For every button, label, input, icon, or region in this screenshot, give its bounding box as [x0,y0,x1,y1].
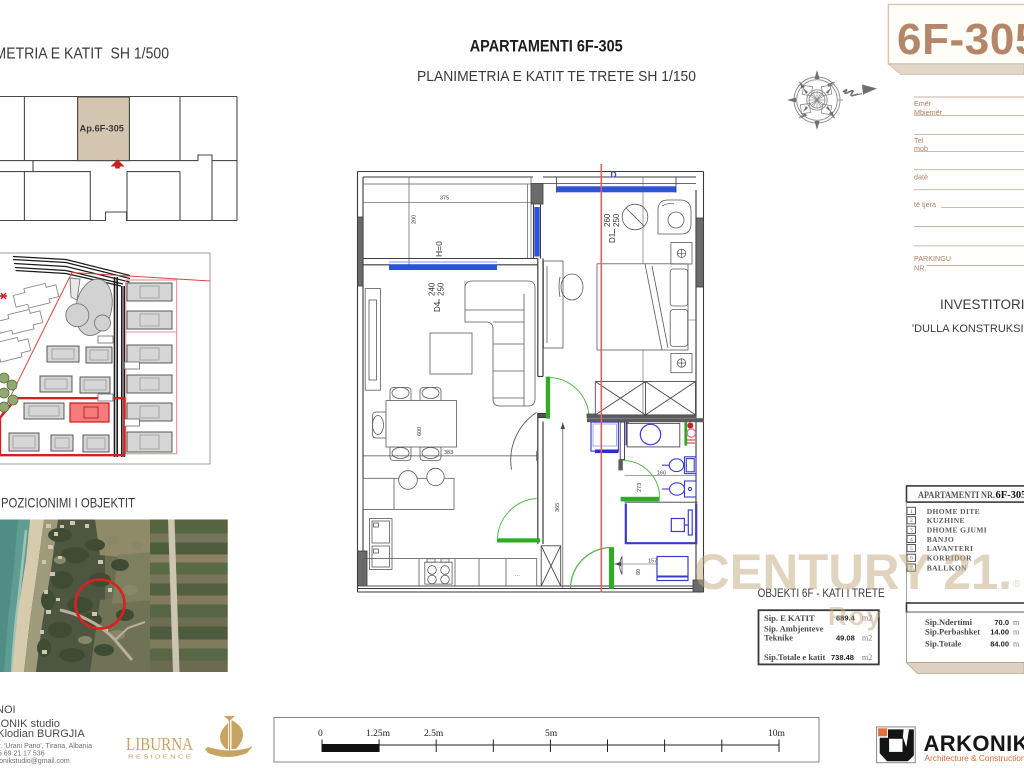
svg-text:datë: datë [914,173,928,182]
svg-text:Ap.6F-305: Ap.6F-305 [80,124,124,134]
svg-text:H=0: H=0 [434,241,444,257]
svg-text:160: 160 [657,470,666,476]
svg-text:Emër: Emër [914,99,932,108]
svg-text:375: 375 [440,196,449,202]
svg-text:250: 250 [437,282,446,296]
svg-text:Architecture & Construction sh: Architecture & Construction sh.p.k [925,753,1024,763]
svg-text:200: 200 [412,215,418,224]
svg-text:Teknike: Teknike [764,633,793,643]
svg-text:10m: 10m [768,729,786,739]
svg-text:m2: m2 [862,653,872,662]
svg-text:Sip.Totale: Sip.Totale [925,638,962,648]
svg-text:rk. Klodian BURGJIA: rk. Klodian BURGJIA [0,728,85,740]
svg-text:80: 80 [636,569,642,575]
svg-text:NR.: NR. [914,264,926,273]
svg-text:738.48: 738.48 [831,653,854,662]
svg-text:84.00: 84.00 [990,639,1009,648]
svg-text:...: ... [515,572,520,578]
svg-text:240: 240 [428,282,437,296]
svg-text:D1: D1 [608,232,617,243]
svg-text:Sip. E KATIT: Sip. E KATIT [764,613,815,623]
svg-text:4: 4 [910,537,913,543]
svg-text:1: 1 [910,509,913,515]
svg-text:POZICIONIMI I OBJEKTIT: POZICIONIMI I OBJEKTIT [1,495,135,511]
svg-text:6F-305: 6F-305 [996,490,1024,501]
svg-text:Sip.Perbashket: Sip.Perbashket [925,627,980,637]
svg-text:14.00: 14.00 [990,628,1009,637]
svg-text:3: 3 [910,528,913,534]
svg-text:m: m [1013,639,1020,648]
svg-text:APARTAMENTI NR.: APARTAMENTI NR. [918,491,995,501]
svg-text:D: D [611,170,617,180]
svg-text:365: 365 [555,503,561,512]
svg-text:600: 600 [417,427,423,436]
svg-text:70.0: 70.0 [994,618,1009,627]
svg-text:DHOME DITE: DHOME DITE [927,507,980,516]
svg-text:273: 273 [637,483,643,492]
svg-text:1.25m: 1.25m [366,729,391,739]
svg-text:0: 0 [318,729,323,739]
svg-text:DHOME GJUMI: DHOME GJUMI [927,526,987,535]
svg-text:®: ® [1013,579,1021,590]
svg-text:Roy: Roy [828,601,883,631]
svg-text:INVESTITORI: INVESTITORI [940,297,1024,312]
svg-text:PLANIMETRIA E KATIT TE TRETE S: PLANIMETRIA E KATIT TE TRETE SH 1/150 [417,69,696,85]
svg-text:mob: mob [914,144,928,153]
svg-text:LIBURNA: LIBURNA [126,734,193,754]
svg-text:6F-305: 6F-305 [897,15,1024,64]
svg-text:2.5m: 2.5m [424,729,444,739]
svg-text:PARKINGU: PARKINGU [914,254,951,263]
svg-text:250: 250 [612,213,621,227]
svg-text:260: 260 [603,213,612,227]
svg-text:Sip.Totale e katit: Sip.Totale e katit [764,652,825,662]
svg-text:APARTAMENTI 6F-305: APARTAMENTI 6F-305 [470,38,623,56]
svg-text:CENTURY 21.: CENTURY 21. [694,544,1012,600]
svg-text:Mbiemër: Mbiemër [914,108,943,117]
svg-text:të tjera: të tjera [914,200,936,209]
svg-text:D4: D4 [433,301,442,312]
svg-text:157: 157 [648,559,657,565]
svg-text:49.08: 49.08 [836,633,855,642]
svg-text:'DULLA KONSTRUKSION' sh.p.k: 'DULLA KONSTRUKSION' sh.p.k [912,323,1024,335]
svg-text:+355 69 21 17 536: +355 69 21 17 536 [0,751,45,758]
svg-text:PLANIMETRIA E KATIT SH 1/500: PLANIMETRIA E KATIT SH 1/500 [0,46,169,63]
svg-text:esa: Rr. 'Urani Pano', Tirana,: esa: Rr. 'Urani Pano', Tirana, Albania [0,743,92,750]
svg-text:5m: 5m [545,729,558,739]
svg-text:R E S I D E N C E: R E S I D E N C E [128,755,192,761]
svg-text:383: 383 [444,450,453,456]
svg-text:BANJO: BANJO [927,535,954,544]
svg-text:m2: m2 [862,633,872,642]
svg-text:l: arkonikstudio@gmail.com: l: arkonikstudio@gmail.com [0,758,70,765]
svg-text:m: m [1013,628,1020,637]
svg-text:2: 2 [910,518,913,524]
svg-text:NOI: NOI [0,704,16,716]
svg-text:m: m [1013,618,1020,627]
svg-text:KUZHINE: KUZHINE [927,516,965,525]
svg-text:Sip.Ndertimi: Sip.Ndertimi [925,617,973,627]
